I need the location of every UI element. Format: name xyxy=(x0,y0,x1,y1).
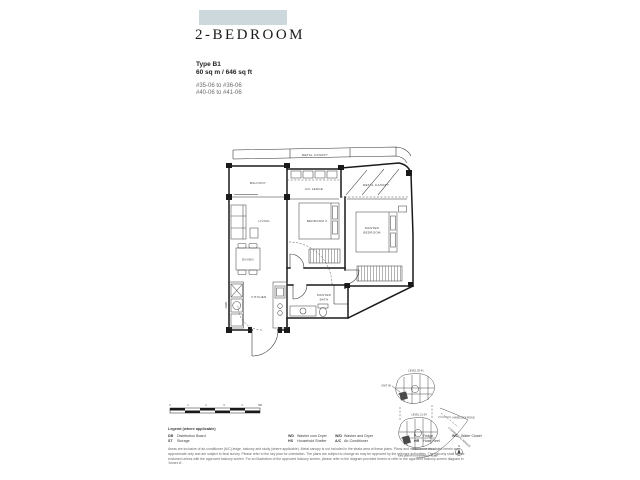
legend-item: WCWater Closet xyxy=(452,434,482,439)
scale-tick-5: 5M xyxy=(258,403,262,407)
master-bath-label-1: MASTER xyxy=(317,293,332,297)
dining-label: DINING xyxy=(242,258,254,262)
master-bedroom: MASTER BEDROOM xyxy=(345,206,407,284)
kitchen-label: KITCHEN xyxy=(252,295,267,299)
scale-tick-3: 3 xyxy=(223,403,225,407)
legend-label: Distribution Board xyxy=(177,434,206,438)
keyplan-lower-level-label: LEVEL 21-34 xyxy=(411,413,427,417)
legend-label: Water Closet xyxy=(461,434,482,438)
brochure-page: { "header": { "swatch_color": "#ccd8dc",… xyxy=(0,0,640,480)
legend-item: HSHousehold Shelter xyxy=(288,439,327,444)
metal-canopy-right: METAL CANOPY xyxy=(341,163,411,197)
disclaimer-text: Areas are inclusive of air-conditioner (… xyxy=(168,447,468,466)
bedroom-2: BEDROOM 2 xyxy=(290,203,340,268)
scale-tick-2: 2 xyxy=(205,403,207,407)
legend-column-2: WDWasher cum Dryer HSHousehold Shelter xyxy=(288,434,327,445)
legend-label: Hose Reel xyxy=(423,439,440,443)
appliance-label: F/WD xyxy=(224,302,228,309)
legend-column-1: DBDistribution Board STStorage xyxy=(168,434,206,445)
scale-tick-4: 4 xyxy=(241,403,243,407)
legend-label: Air-Conditioner xyxy=(344,439,368,443)
legend-abbr: HS xyxy=(288,439,297,444)
dining-area: DINING xyxy=(236,244,260,275)
scale-bar: 0 1 2 3 4 5M xyxy=(169,403,262,413)
metal-canopy-top-label: METAL CANOPY xyxy=(302,153,328,157)
legend-column-5: WCWater Closet xyxy=(452,434,482,439)
legend-label: Washer and Dryer xyxy=(344,434,373,438)
legend-item: A/CAir-Conditioner xyxy=(335,439,373,444)
legend-column-4: FFridge HRHose Reel xyxy=(414,434,440,445)
living-label: LIVING xyxy=(258,219,270,223)
master-bedroom-label-1: MASTER xyxy=(365,226,380,230)
legend-abbr: A/C xyxy=(335,439,344,444)
keyplan-upper-level-label: LEVEL 35-41 xyxy=(408,369,424,373)
living-room: LIVING xyxy=(231,205,270,239)
ac-ledge-label: A/C LEDGE xyxy=(305,187,323,191)
balcony: BALCONY xyxy=(229,166,287,197)
scale-tick-1: 1 xyxy=(187,403,189,407)
metal-canopy-right-label: METAL CANOPY xyxy=(363,183,389,187)
legend-label: Washer cum Dryer xyxy=(297,434,327,438)
master-bath: MASTER BATH xyxy=(290,285,348,317)
metal-canopy-top: METAL CANOPY xyxy=(233,147,411,163)
balcony-label: BALCONY xyxy=(250,181,266,185)
legend-item: STStorage xyxy=(168,439,206,444)
legend-abbr: WC xyxy=(452,434,461,439)
master-bath-label-2: BATH xyxy=(320,298,329,302)
legend-label: Household Shelter xyxy=(297,439,327,443)
kitchen: F/WD KITCHEN xyxy=(224,282,287,328)
legend-label: Storage xyxy=(177,439,190,443)
legend-label: Fridge xyxy=(423,434,433,438)
scale-tick-0: 0 xyxy=(169,403,171,407)
legend: Legend (where applicable) DBDistribution… xyxy=(168,427,480,446)
floorplan-drawing: METAL CANOPY BALCONY A/C LEDGE METAL CAN… xyxy=(0,0,640,480)
master-bedroom-label-2: BEDROOM xyxy=(363,231,381,235)
legend-abbr: ST xyxy=(168,439,177,444)
ac-ledge: A/C LEDGE xyxy=(287,169,341,197)
legend-item: HRHose Reel xyxy=(414,439,440,444)
legend-title: Legend (where applicable) xyxy=(168,427,480,433)
bedroom2-label: BEDROOM 2 xyxy=(307,219,327,223)
entry-door xyxy=(252,330,278,356)
legend-abbr: HR xyxy=(414,439,423,444)
legend-column-3: W/DWasher and Dryer A/CAir-Conditioner xyxy=(335,434,373,445)
keyplan-road-right-label: HAVELOCK ROAD xyxy=(453,416,475,420)
keyplan-unit-pointer-label: UNIT 06 xyxy=(381,384,391,388)
